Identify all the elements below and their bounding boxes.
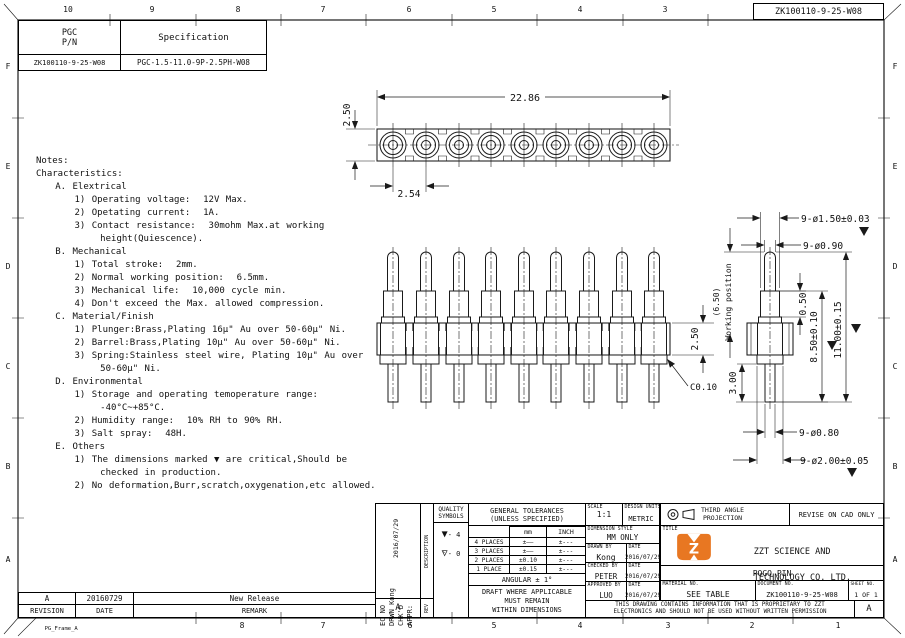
- quality-symbols-cell: QUALITY SYMBOLS ▼- 4 ▽- 0 c: [433, 503, 469, 618]
- zone-label-top: 3: [654, 5, 676, 14]
- product-title: POGO PIN: [660, 565, 884, 581]
- zone-label-left: C: [0, 362, 19, 371]
- quality-label-1: QUALITY: [438, 506, 463, 513]
- proprietary-note: THIS DRAWING CONTAINS INFORMATION THAT I…: [585, 600, 855, 618]
- projection-cell: THIRD ANGLE PROJECTION: [660, 503, 790, 526]
- dim-plunger-diameter: 9-ø0.90: [803, 241, 843, 252]
- drawn-by-label: DRAWN BY: [588, 545, 612, 551]
- top-view: 22.86 2.50 2.54: [342, 90, 679, 200]
- zone-label-top: 4: [569, 5, 591, 14]
- rev-column-label: REV: [420, 598, 434, 618]
- zone-label-right: B: [884, 462, 905, 471]
- material-label: MATERIAL NO.: [663, 582, 699, 588]
- dim-tail-length: 3.00: [728, 371, 739, 394]
- checked-date-cell: DATE 2016/07/29: [626, 562, 660, 582]
- description-column-label: DESCRIPTION: [420, 503, 434, 599]
- company-name-1: ZZT SCIENCE AND: [754, 547, 831, 557]
- date-header: DATE: [75, 604, 134, 618]
- ec-date: 2016/07/29: [392, 502, 400, 558]
- date-label: DATE: [629, 564, 641, 570]
- dim-overall-length: 22.86: [510, 93, 540, 104]
- zone-label-top: 5: [483, 5, 505, 14]
- dim-barrel-length: 8.50±0.10: [809, 311, 820, 363]
- dimension-style-cell: DIMENSION STYLE MM ONLY: [585, 525, 660, 544]
- critical-mark: [859, 227, 869, 236]
- zone-label-top: 7: [312, 5, 334, 14]
- sheet-label: SHEET NO.: [851, 582, 875, 588]
- design-units-label: DESIGN UNITS: [625, 505, 661, 511]
- sheet-cell: SHEET NO. 1 OF 1: [848, 580, 884, 601]
- zone-label-top: 8: [227, 5, 249, 14]
- ec-approvals-cell: EC NO DRWN Kong CHK'D APPR: 2016/07/29: [375, 503, 421, 599]
- frame-name: PG_Frame_A: [45, 626, 78, 632]
- checked-by-cell: CHECKED BY PETER: [585, 562, 627, 582]
- remark-header: REMARK: [133, 604, 376, 618]
- approved-by-label: APPROVED BY: [588, 583, 621, 589]
- draft-note-2: MUST REMAIN: [504, 597, 549, 605]
- zone-label-right: C: [884, 362, 905, 371]
- third-angle-icon: [667, 508, 697, 521]
- doc-number-box: ZK100110-9-25-W08: [753, 3, 884, 20]
- zone-label-top: 9: [141, 5, 163, 14]
- critical-mark: [851, 324, 861, 333]
- zone-label-bottom: 4: [569, 621, 591, 630]
- date-label: DATE: [629, 545, 641, 551]
- company-cell: TITLE Z ZZT SCIENCE AND TECHNOLOGY CO. L…: [660, 525, 884, 566]
- part-number-cell: ZK100110-9-25-W08: [18, 54, 121, 71]
- zone-label-right: A: [884, 555, 905, 564]
- projection-label-2: PROJECTION: [703, 514, 742, 522]
- svg-text:Z: Z: [689, 542, 699, 558]
- zone-label-right: E: [884, 162, 905, 171]
- dim-tail-diameter: 9-ø0.80: [799, 428, 839, 439]
- part-spec-cell: PGC-1.5-11.0-9P-2.5PH-W08: [120, 54, 267, 71]
- zone-label-top: 10: [57, 5, 79, 14]
- pn-header-line2: P/N: [62, 38, 77, 48]
- pn-header-line1: PGC: [62, 28, 77, 38]
- dim-lip: 0.50: [798, 292, 809, 315]
- part-table-header-pn: PGC P/N: [18, 20, 121, 55]
- tolerance-title-2: (UNLESS SPECIFIED): [490, 515, 564, 523]
- zone-label-bottom: 5: [483, 621, 505, 630]
- zone-label-right: F: [884, 62, 905, 71]
- company-logo: Z: [675, 532, 713, 562]
- dim-tip-diameter: 9-ø1.50±0.03: [801, 214, 870, 225]
- quality-label-2: SYMBOLS: [438, 513, 463, 520]
- zone-label-bottom: 7: [312, 621, 334, 630]
- zone-label-bottom: 3: [657, 621, 679, 630]
- revision-header: REVISION: [18, 604, 76, 618]
- zone-label-top: 6: [398, 5, 420, 14]
- approved-date-cell: DATE 2016/07/29: [626, 581, 660, 601]
- draft-note: DRAFT WHERE APPLICABLE MUST REMAIN WITHI…: [468, 585, 586, 618]
- revise-note-cell: REVISE ON CAD ONLY: [789, 503, 884, 526]
- dim-pitch: 2.54: [398, 189, 421, 200]
- zone-label-left: E: [0, 162, 19, 171]
- zone-label-left: D: [0, 262, 19, 271]
- zone-label-right: D: [884, 262, 905, 271]
- scale-label: SCALE: [588, 505, 603, 511]
- c-symbol-letter: c: [443, 549, 445, 554]
- side-view: 2.50 C0.10: [377, 247, 717, 411]
- frame-note: PG_Frame_A rev. A 2015/05/01: [38, 619, 104, 638]
- draft-note-3: WITHIN DIMENSIONS: [492, 606, 562, 614]
- zone-label-bottom: 8: [231, 621, 253, 630]
- drawn-by-cell: DRAWN BY Kong: [585, 543, 627, 563]
- checked-by-label: CHECKED BY: [588, 564, 618, 570]
- dim-working-value: (6.50): [712, 288, 721, 317]
- document-number-cell: DOCUMENT NO. ZK100110-9-25-W08: [755, 580, 849, 601]
- tolerance-title: GENERAL TOLERANCES (UNLESS SPECIFIED): [468, 503, 586, 526]
- dim-total-length: 11.00±0.15: [833, 301, 844, 358]
- c-count: - 0: [448, 550, 461, 558]
- part-table-header-spec: Specification: [120, 20, 267, 55]
- dim-working-label: Working position: [724, 263, 733, 340]
- draft-note-1: DRAFT WHERE APPLICABLE: [482, 588, 572, 596]
- ec-rev-value: A: [375, 598, 421, 618]
- dim-strip-height: 2.50: [342, 103, 353, 126]
- design-units-cell: DESIGN UNITS METRIC: [622, 503, 660, 526]
- detail-view: 9-ø1.50±0.03 9-ø0.90 (6.50) Working posi…: [712, 212, 870, 477]
- approved-by-cell: APPROVED BY LUO: [585, 581, 627, 601]
- zone-label-bottom: 1: [827, 621, 849, 630]
- zone-label-left: B: [0, 462, 19, 471]
- drawn-date-cell: DATE 2016/07/29: [626, 543, 660, 563]
- document-number-label: DOCUMENT NO.: [758, 582, 794, 588]
- date-label: DATE: [629, 583, 641, 589]
- proprietary-line-2: ELECTRONICS AND SHOULD NOT BE USED WITHO…: [614, 609, 827, 615]
- zone-label-bottom: 2: [741, 621, 763, 630]
- dim-body-height: 2.50: [690, 327, 701, 350]
- critical-mark: [847, 468, 857, 477]
- dimension-style-label: DIMENSION STYLE: [588, 527, 633, 533]
- sheet-rev-box: A: [854, 600, 884, 618]
- tolerance-title-1: GENERAL TOLERANCES: [490, 507, 564, 515]
- critical-count: - 4: [448, 531, 461, 539]
- notes-block: Notes: Characteristics: A. Elextrical 1)…: [36, 155, 376, 493]
- zone-label-left: F: [0, 62, 19, 71]
- material-cell: MATERIAL NO. SEE TABLE: [660, 580, 756, 601]
- dim-chamfer: C0.10: [690, 383, 717, 393]
- dim-base-diameter: 9-ø2.00±0.05: [800, 456, 869, 467]
- engineering-drawing-sheet: 22.86 2.50 2.54 2.50 C0.10: [0, 0, 905, 638]
- zone-label-left: A: [0, 555, 19, 564]
- scale-cell: SCALE 1:1: [585, 503, 623, 526]
- proprietary-line-1: THIS DRAWING CONTAINS INFORMATION THAT I…: [615, 602, 824, 608]
